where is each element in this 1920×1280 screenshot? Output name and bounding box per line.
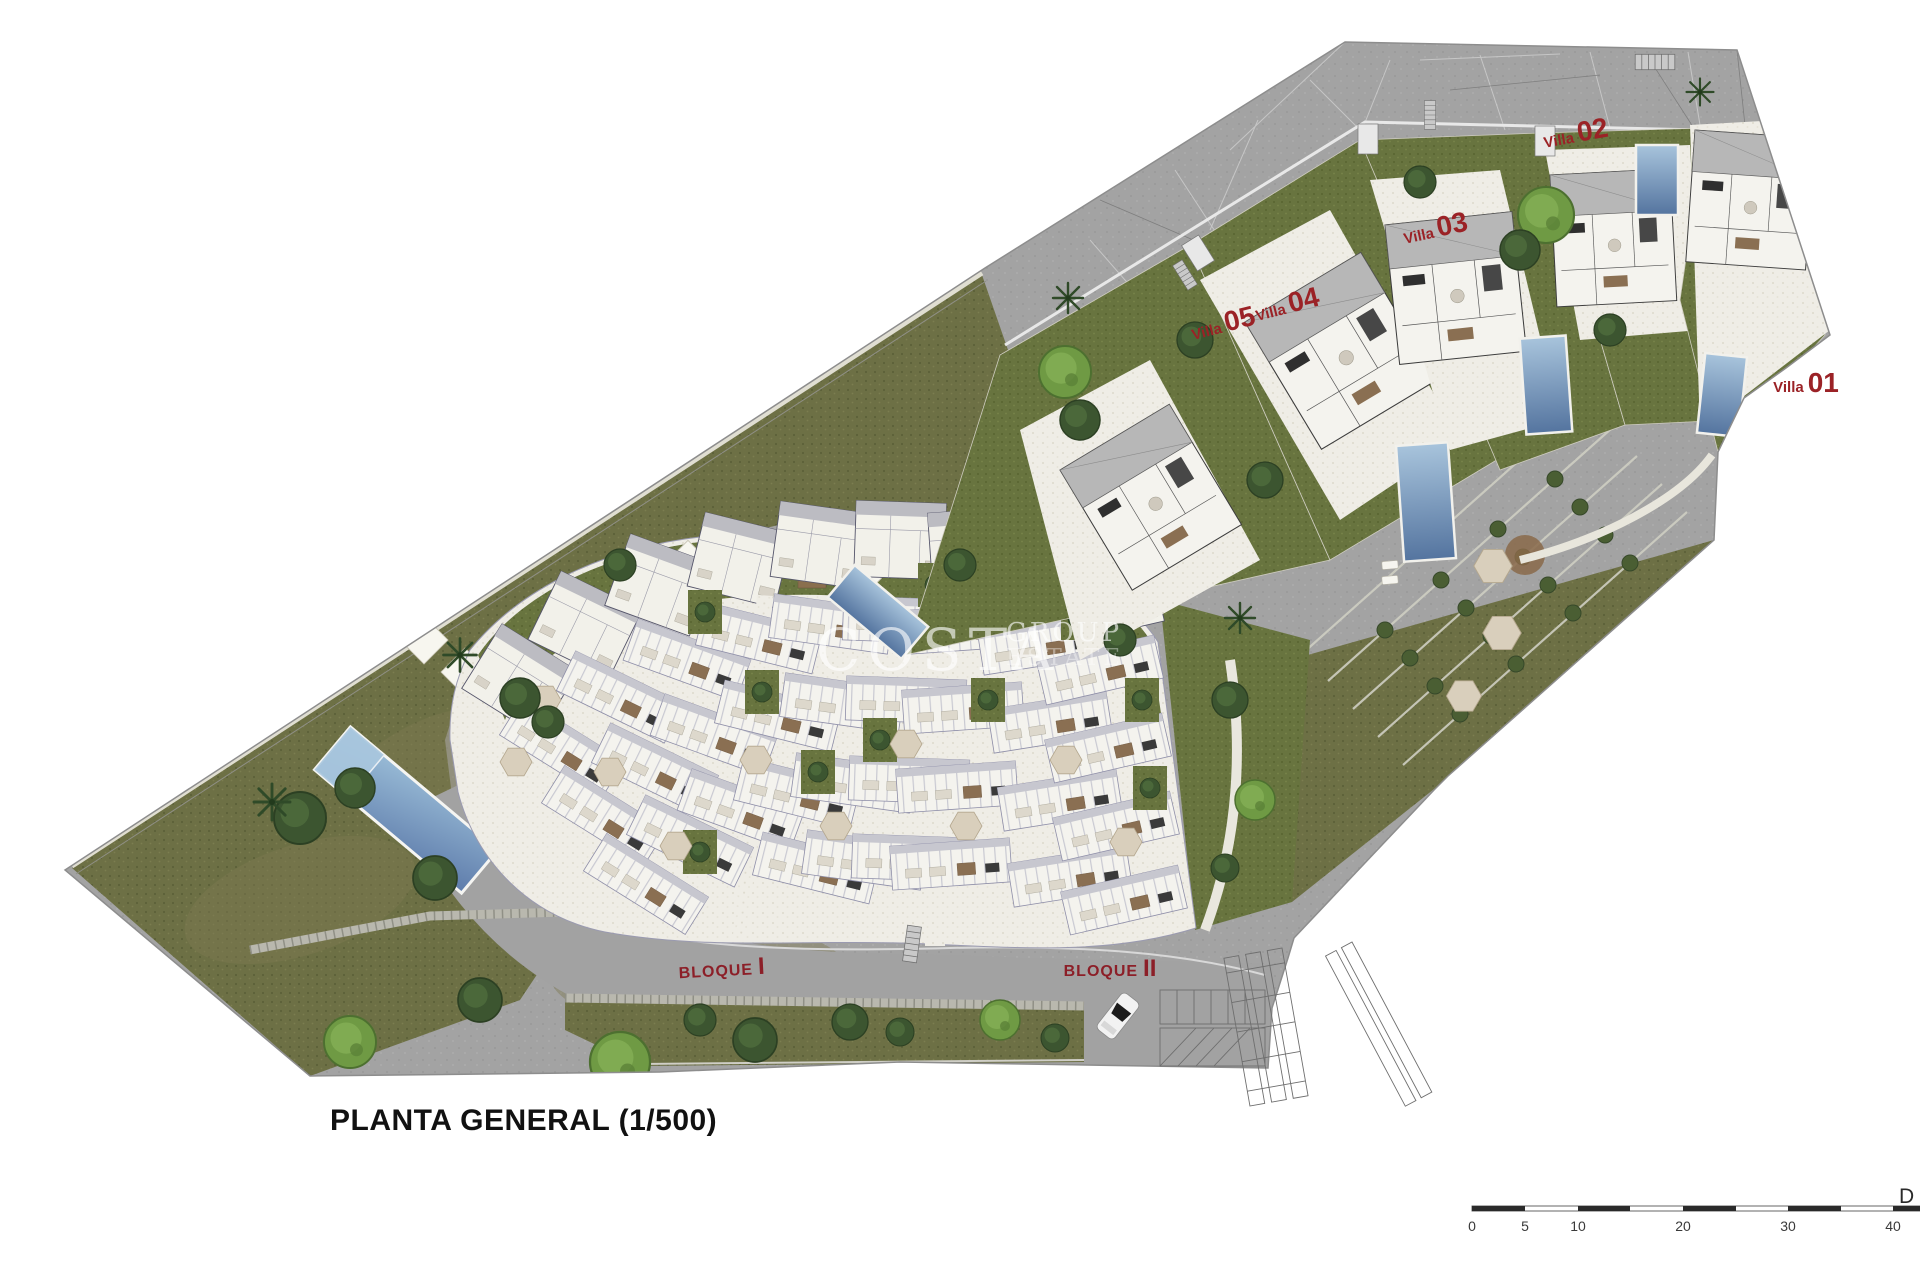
villa-02-pool (1636, 145, 1678, 215)
villa-01-label: Villa01 (1773, 367, 1839, 398)
site-plan-page: Villa01 Villa02 Villa03 Villa04 Villa05 … (0, 0, 1920, 1280)
scale-tick-5: 5 (1521, 1218, 1529, 1234)
bloque-2-word: BLOQUE (1064, 963, 1138, 980)
scale-tick-0: 0 (1468, 1218, 1476, 1234)
scale-tick-30: 30 (1780, 1218, 1796, 1234)
villa-03-number: 03 (1433, 206, 1470, 243)
watermark-secondary: GROUP (1006, 618, 1122, 648)
scale-tick-10: 10 (1570, 1218, 1586, 1234)
scale-tick-20: 20 (1675, 1218, 1691, 1234)
scale-bar-ticks: 0 5 10 20 30 40 (1468, 1218, 1901, 1234)
scale-bar-edge-label: D (1899, 1185, 1914, 1208)
site-plan-drawing: Villa01 Villa02 Villa03 Villa04 Villa05 … (0, 0, 1920, 1280)
villa-01-prefix: Villa (1773, 379, 1804, 396)
plan-title: PLANTA GENERAL (1/500) (330, 1104, 717, 1137)
bloque-1-numeral: I (757, 953, 765, 980)
villa-01-number: 01 (1808, 367, 1839, 398)
bloque-2-numeral: II (1143, 955, 1156, 982)
villa-04-pool (1396, 442, 1456, 561)
scale-bar: 0 5 10 20 30 40 D (1468, 1185, 1920, 1234)
watermark-tertiary: ESTATE (1006, 645, 1124, 671)
villa-01-pool (1697, 353, 1747, 437)
villa-03-pool (1520, 336, 1573, 435)
scale-tick-40: 40 (1885, 1218, 1901, 1234)
villa-02-number: 02 (1574, 112, 1610, 148)
villa-01-parcel (1680, 118, 1830, 452)
